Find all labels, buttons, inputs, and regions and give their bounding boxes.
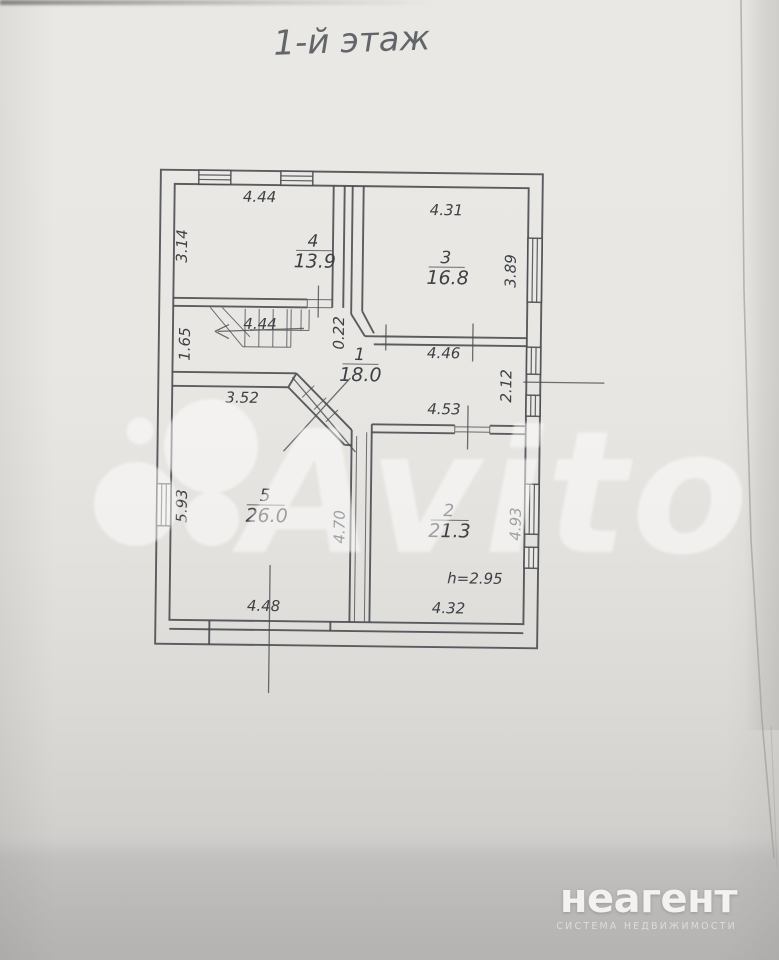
room-1-label: 1 18.0 <box>339 345 382 387</box>
dim-room3-side: 3.89 <box>501 254 519 288</box>
room-number: 4 <box>308 231 319 251</box>
avito-watermark-text: Avito <box>231 395 752 593</box>
dim-stair-arrow: 4.44 <box>243 315 277 333</box>
room-number: 3 <box>440 248 451 268</box>
neagent-logo: неагент СИСТЕМА НЕДВИЖИМОСТИ <box>556 878 737 932</box>
dim-stair-side: 1.65 <box>176 327 194 361</box>
room-number: 1 <box>354 345 365 365</box>
avito-watermark: Avito <box>94 395 752 593</box>
dim-room4-side: 3.14 <box>173 229 191 263</box>
brand-name: неагент <box>556 878 737 920</box>
floor-plan-drawing: 1-й этаж <box>0 0 779 960</box>
window-icon <box>199 170 231 184</box>
page-title: 1-й этаж <box>273 18 431 63</box>
room-area: 16.8 <box>426 267 469 290</box>
room-area: 18.0 <box>339 364 382 387</box>
window-icon <box>526 347 540 374</box>
dim-room5-bottom: 4.48 <box>247 597 281 615</box>
dim-room2-bottom: 4.32 <box>432 599 466 617</box>
photo-of-floor-plan: 1-й этаж <box>0 0 779 960</box>
dim-room3-top: 4.31 <box>430 201 464 219</box>
window-icon <box>281 171 313 185</box>
room-area: 13.9 <box>294 250 337 273</box>
dim-hall: 4.46 <box>427 344 461 362</box>
dim-top-left: 4.44 <box>243 188 277 206</box>
avito-logo-icon <box>94 399 258 546</box>
dim-wall-gap: 0.22 <box>330 316 348 350</box>
room-3-label: 3 16.8 <box>426 248 469 290</box>
room-4-label: 4 13.9 <box>294 231 337 273</box>
brand-tagline: СИСТЕМА НЕДВИЖИМОСТИ <box>556 921 737 932</box>
window-icon <box>527 238 542 302</box>
